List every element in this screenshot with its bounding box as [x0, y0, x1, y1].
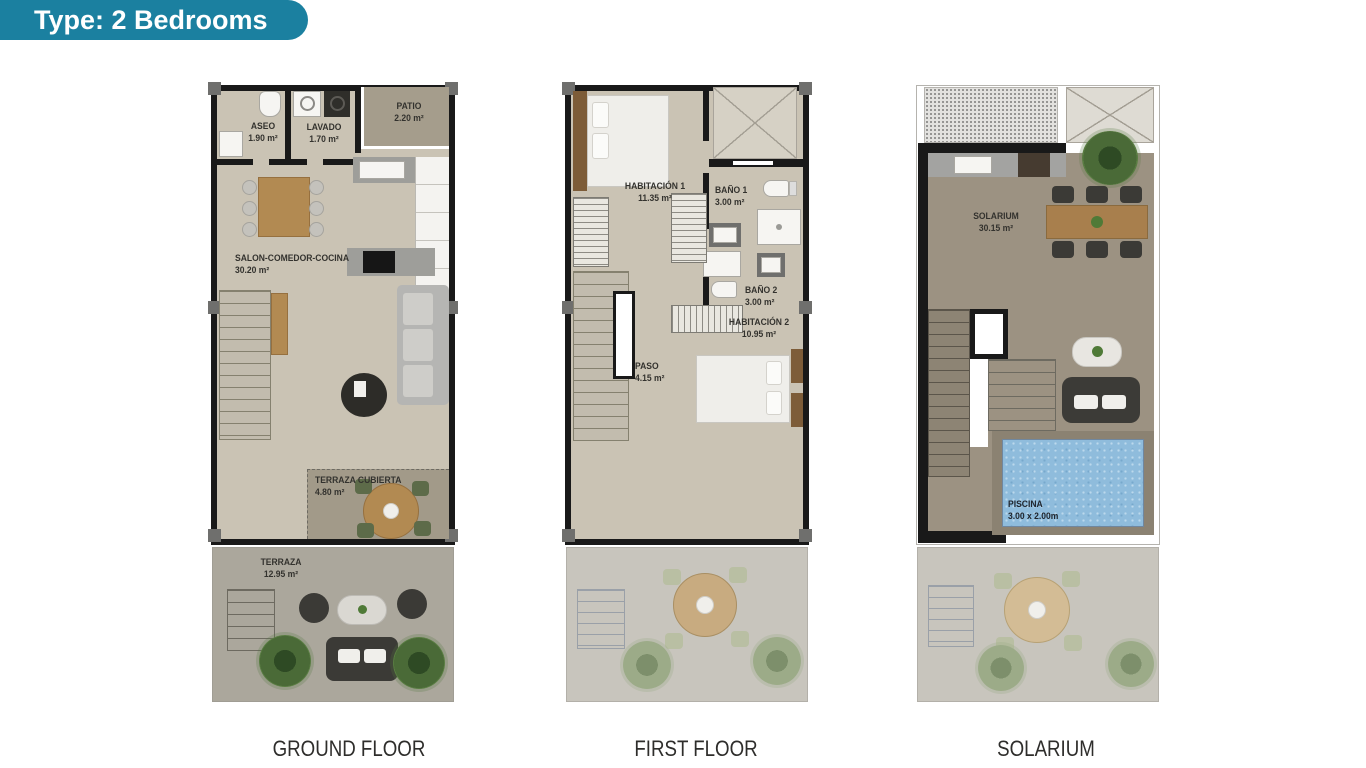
shower-tray-icon — [703, 251, 741, 277]
shower-drain — [776, 224, 782, 230]
terrace-chair-icon — [1064, 635, 1082, 651]
room-label-area: 1.90 m² — [229, 133, 297, 145]
chair-icon — [1052, 186, 1074, 203]
room-label-area: 3.00 x 2.00m — [1008, 511, 1094, 523]
table-parasol-base — [383, 503, 399, 519]
room-label-name: LAVADO — [293, 122, 356, 134]
kitchen-sink-icon — [954, 156, 992, 174]
gf-wall — [269, 159, 307, 165]
sofa-cushion — [338, 649, 360, 663]
stair-landing-strip — [970, 359, 988, 447]
toilet-icon — [259, 91, 281, 117]
room-label-area: 12.95 m² — [241, 569, 321, 581]
chair-icon — [242, 180, 257, 195]
chair-icon — [309, 180, 324, 195]
room-label-area: 4.80 m² — [315, 487, 420, 499]
kitchen-sink-icon — [359, 161, 405, 179]
room-label-name: PATIO — [381, 101, 438, 113]
floor-plan-sheet: Type: 2 Bedrooms — [0, 0, 1366, 768]
room-label-name: TERRAZA — [241, 557, 321, 569]
terrace-chair-icon — [357, 523, 374, 538]
so-stairs — [928, 309, 970, 477]
wardrobe — [573, 197, 609, 267]
chair-icon — [1086, 186, 1108, 203]
terrace-chair-icon — [994, 573, 1012, 589]
plant-icon — [978, 645, 1024, 691]
room-label-name: PASO — [635, 361, 692, 373]
washbasin-icon — [761, 257, 781, 273]
sideboard — [271, 293, 288, 355]
toilet-icon — [711, 281, 737, 298]
so-wall — [918, 143, 928, 535]
room-label-piscina: PISCINA 3.00 x 2.00m — [1008, 499, 1094, 522]
chair-icon — [1120, 186, 1142, 203]
room-label-area: 3.00 m² — [715, 197, 791, 209]
room-label-area: 10.95 m² — [715, 329, 802, 341]
chair-icon — [1052, 241, 1074, 258]
terrace-chair-icon — [729, 567, 747, 583]
table-parasol-base — [696, 596, 714, 614]
sofa-cushion — [1102, 395, 1126, 409]
sofa-cushion — [403, 293, 433, 325]
room-label-solarium: SOLARIUM 30.15 m² — [952, 211, 1039, 234]
plant-icon — [1108, 641, 1154, 687]
gravel-roof-area — [924, 87, 1058, 143]
room-label-area: 30.15 m² — [952, 223, 1039, 235]
type-badge-label: Type: 2 Bedrooms — [34, 5, 268, 35]
room-label-name: SALON-COMEDOR-COCINA — [235, 253, 368, 265]
terrace-chair-icon — [663, 569, 681, 585]
type-badge: Type: 2 Bedrooms — [0, 0, 308, 40]
pillow — [766, 361, 782, 385]
room-label-area: 4.15 m² — [635, 373, 692, 385]
room-label-name: HABITACIÓN 1 — [608, 181, 703, 193]
so-stairs-lower — [988, 359, 1056, 431]
so-exterior-stairs-below — [928, 585, 974, 647]
room-label-name: BAÑO 2 — [745, 285, 804, 297]
plan-first-floor: HABITACIÓN 1 11.35 m² BAÑO 1 3.00 m² BAÑ… — [565, 85, 809, 707]
gf-wall — [215, 159, 253, 165]
wall-pillar — [562, 529, 575, 542]
pillow — [592, 102, 609, 128]
room-label-terraza-cubierta: TERRAZA CUBIERTA 4.80 m² — [315, 475, 420, 498]
so-wall — [918, 143, 1066, 153]
plant-icon — [623, 641, 671, 689]
stair-void — [970, 309, 1008, 359]
bbq-icon — [1018, 153, 1050, 177]
table-plant-icon — [1092, 346, 1103, 357]
pouf — [299, 593, 329, 623]
caption-first-floor: FIRST FLOOR — [603, 736, 790, 762]
sofa-cushion — [364, 649, 386, 663]
room-label-terraza: TERRAZA 12.95 m² — [241, 557, 321, 580]
chair-icon — [242, 201, 257, 216]
terrace-chair-icon — [414, 521, 431, 536]
room-label-name: BAÑO 1 — [715, 185, 791, 197]
washer-drum-icon — [300, 96, 315, 111]
chair-icon — [309, 222, 324, 237]
terrace-chair-icon — [731, 631, 749, 647]
room-label-aseo: ASEO 1.90 m² — [229, 121, 297, 144]
terrace-chair-icon — [665, 633, 683, 649]
coffee-table-tray — [354, 381, 366, 397]
plan-ground-floor: ASEO 1.90 m² LAVADO 1.70 m² PATIO 2.20 m… — [211, 85, 455, 707]
pouf — [397, 589, 427, 619]
chair-icon — [1120, 241, 1142, 258]
bed-headboard — [791, 349, 803, 383]
plan-solarium: SOLARIUM 30.15 m² PISCINA 3.00 x 2.00m — [916, 85, 1160, 707]
pillow — [592, 133, 609, 159]
room-label-name: HABITACIÓN 2 — [715, 317, 802, 329]
room-label-name: PISCINA — [1008, 499, 1094, 511]
room-label-area: 3.00 m² — [745, 297, 804, 309]
chair-icon — [1086, 241, 1108, 258]
plant-icon — [753, 637, 801, 685]
room-label-habitacion1: HABITACIÓN 1 11.35 m² — [608, 181, 703, 204]
sofa-cushion — [403, 365, 433, 397]
dryer-drum-icon — [330, 96, 345, 111]
room-label-name: ASEO — [229, 121, 297, 133]
sofa-cushion — [403, 329, 433, 361]
table-parasol-base — [1028, 601, 1046, 619]
skylight-void — [713, 87, 797, 159]
room-label-name: TERRAZA CUBIERTA — [315, 475, 420, 487]
bed-headboard — [573, 91, 587, 191]
outdoor-sofa — [326, 637, 398, 681]
stair-void — [613, 291, 635, 379]
wall-pillar — [799, 529, 812, 542]
ff-exterior-stairs-below — [577, 589, 625, 649]
caption-ground-floor: GROUND FLOOR — [256, 736, 443, 762]
table-plant-icon — [1091, 216, 1103, 228]
room-label-area: 30.20 m² — [235, 265, 368, 277]
bed-headboard — [791, 393, 803, 427]
plant-icon — [393, 637, 445, 689]
chair-icon — [309, 201, 324, 216]
plant-icon — [1082, 131, 1138, 185]
room-label-lavado: LAVADO 1.70 m² — [293, 122, 356, 145]
sofa-cushion — [1074, 395, 1098, 409]
room-label-area: 2.20 m² — [381, 113, 438, 125]
table-plant-icon — [358, 605, 367, 614]
wall-pillar — [208, 82, 221, 95]
room-label-name: SOLARIUM — [952, 211, 1039, 223]
dining-table — [258, 177, 310, 237]
pillow — [766, 391, 782, 415]
room-label-bano2: BAÑO 2 3.00 m² — [745, 285, 804, 308]
ff-wall — [703, 87, 709, 141]
terrace-chair-icon — [1062, 571, 1080, 587]
window-sill — [733, 161, 773, 165]
gf-stairs — [219, 290, 271, 440]
wall-pillar — [208, 529, 221, 542]
room-label-area: 1.70 m² — [293, 134, 356, 146]
room-label-area: 11.35 m² — [608, 193, 703, 205]
caption-solarium: SOLARIUM — [953, 736, 1140, 762]
plant-icon — [259, 635, 311, 687]
washbasin-icon — [713, 227, 737, 243]
room-label-paso: PASO 4.15 m² — [635, 361, 692, 384]
wall-pillar — [799, 82, 812, 95]
room-label-bano1: BAÑO 1 3.00 m² — [715, 185, 791, 208]
chair-icon — [242, 222, 257, 237]
room-label-salon: SALON-COMEDOR-COCINA 30.20 m² — [235, 253, 368, 276]
room-label-patio: PATIO 2.20 m² — [381, 101, 438, 124]
room-label-habitacion2: HABITACIÓN 2 10.95 m² — [715, 317, 802, 340]
